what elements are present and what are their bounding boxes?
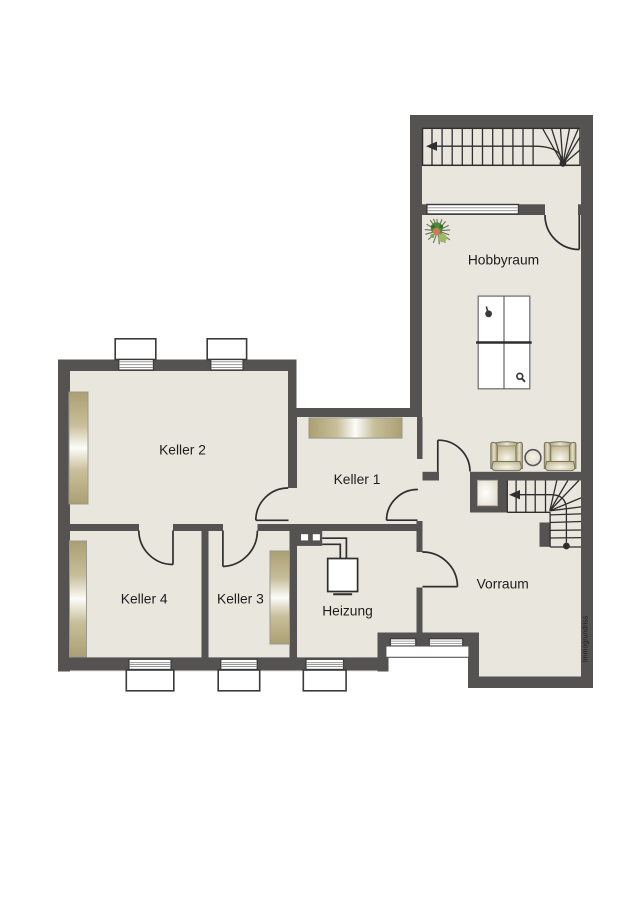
svg-text:Heizung: Heizung: [322, 604, 373, 619]
svg-text:Keller 4: Keller 4: [121, 591, 168, 606]
svg-text:Immogrundriss: Immogrundriss: [583, 615, 590, 662]
svg-text:Keller 1: Keller 1: [334, 472, 381, 487]
svg-text:Vorraum: Vorraum: [477, 576, 529, 591]
svg-text:Keller 3: Keller 3: [217, 591, 264, 606]
svg-text:Hobbyraum: Hobbyraum: [468, 253, 539, 268]
svg-text:Keller 2: Keller 2: [159, 442, 206, 457]
